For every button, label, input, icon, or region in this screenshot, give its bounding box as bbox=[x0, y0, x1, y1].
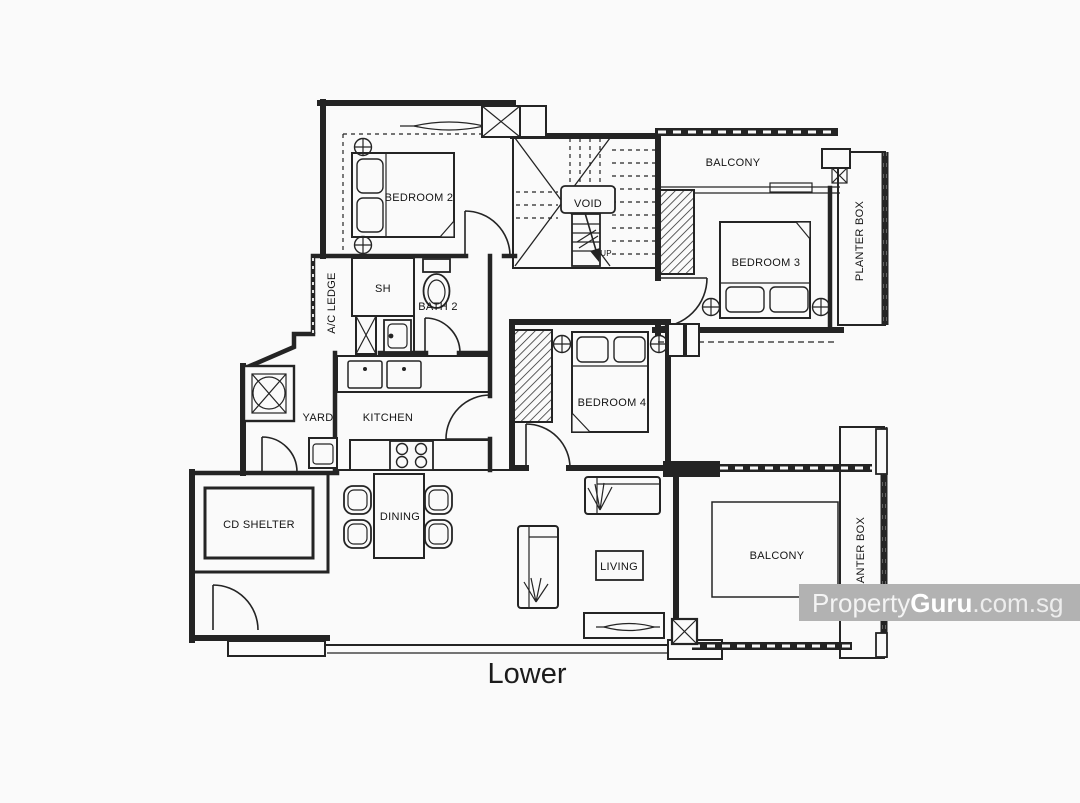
basin-icon bbox=[384, 320, 411, 352]
door-swing bbox=[213, 585, 258, 630]
bedroom2-label: BEDROOM 2 bbox=[385, 192, 454, 204]
door-swing bbox=[446, 395, 490, 439]
sofa-icon bbox=[585, 477, 660, 514]
bed-icon bbox=[720, 222, 810, 318]
cd-shelter-label: CD SHELTER bbox=[223, 519, 295, 531]
column bbox=[686, 324, 699, 356]
floorplan-svg: PLANTER BOX PLANTER BOX VOID UP bbox=[0, 0, 1080, 803]
bedroom3: BEDROOM 3 bbox=[658, 183, 830, 327]
kitchen: KITCHEN bbox=[337, 356, 491, 470]
shaft-icon bbox=[244, 366, 294, 421]
balcony-bottom: BALCONY bbox=[712, 502, 838, 597]
bathroom2: SH BATH 2 bbox=[352, 258, 460, 354]
column bbox=[668, 324, 684, 356]
ac-ledge-label: A/C LEDGE bbox=[326, 272, 338, 333]
floor-label: Lower bbox=[488, 658, 567, 690]
bed-icon bbox=[572, 332, 648, 432]
sofa-icon bbox=[518, 526, 558, 608]
wardrobe-icon bbox=[660, 190, 694, 274]
window-icon bbox=[414, 122, 484, 130]
void-label: VOID bbox=[574, 198, 602, 210]
watermark-brand-light: Property bbox=[812, 590, 910, 616]
watermark-brand-bold: Guru bbox=[910, 590, 972, 616]
bedroom3-label: BEDROOM 3 bbox=[732, 257, 801, 269]
bedroom4-label: BEDROOM 4 bbox=[578, 397, 647, 409]
staircase: VOID UP bbox=[513, 136, 658, 268]
wall-block bbox=[663, 461, 720, 477]
balcony-bottom-label: BALCONY bbox=[750, 550, 805, 562]
floorplan-page: PLANTER BOX PLANTER BOX VOID UP bbox=[0, 0, 1080, 803]
bedroom2: BEDROOM 2 bbox=[343, 106, 546, 256]
door-swing bbox=[425, 318, 460, 353]
yard-label: YARD bbox=[303, 412, 334, 424]
tv-console bbox=[584, 613, 664, 638]
bath2-label: BATH 2 bbox=[418, 301, 458, 313]
entrance bbox=[213, 585, 258, 630]
dining: DINING bbox=[344, 474, 452, 558]
watermark-suffix: .com.sg bbox=[972, 590, 1063, 616]
cd-shelter: CD SHELTER bbox=[192, 473, 328, 572]
washer-icon bbox=[309, 438, 337, 468]
wardrobe-icon bbox=[514, 330, 552, 422]
door-swing bbox=[262, 437, 297, 472]
living-label: LIVING bbox=[600, 561, 638, 573]
watermark: PropertyGuru.com.sg bbox=[799, 584, 1080, 621]
door-swing bbox=[526, 424, 570, 468]
ac-ledge: A/C LEDGE bbox=[326, 272, 338, 333]
entry-step bbox=[228, 641, 325, 656]
kitchen-label: KITCHEN bbox=[363, 412, 413, 424]
planter-box-top-label: PLANTER BOX bbox=[854, 200, 866, 281]
bedroom4: BEDROOM 4 bbox=[514, 324, 699, 468]
yard: YARD bbox=[244, 366, 337, 472]
planter-box-bottom: PLANTER BOX bbox=[840, 427, 887, 658]
door-swing bbox=[465, 211, 510, 256]
balcony-top-label: BALCONY bbox=[706, 157, 761, 169]
dining-label: DINING bbox=[380, 511, 420, 523]
stove-icon bbox=[390, 441, 433, 470]
kitchen-sink-icon bbox=[348, 361, 421, 388]
up-label: UP bbox=[600, 249, 612, 258]
shower-label: SH bbox=[375, 283, 391, 295]
balcony-top: BALCONY bbox=[706, 157, 761, 169]
stair-flight bbox=[572, 214, 600, 266]
living: LIVING bbox=[518, 477, 697, 644]
column-shaft-icon bbox=[672, 619, 697, 644]
